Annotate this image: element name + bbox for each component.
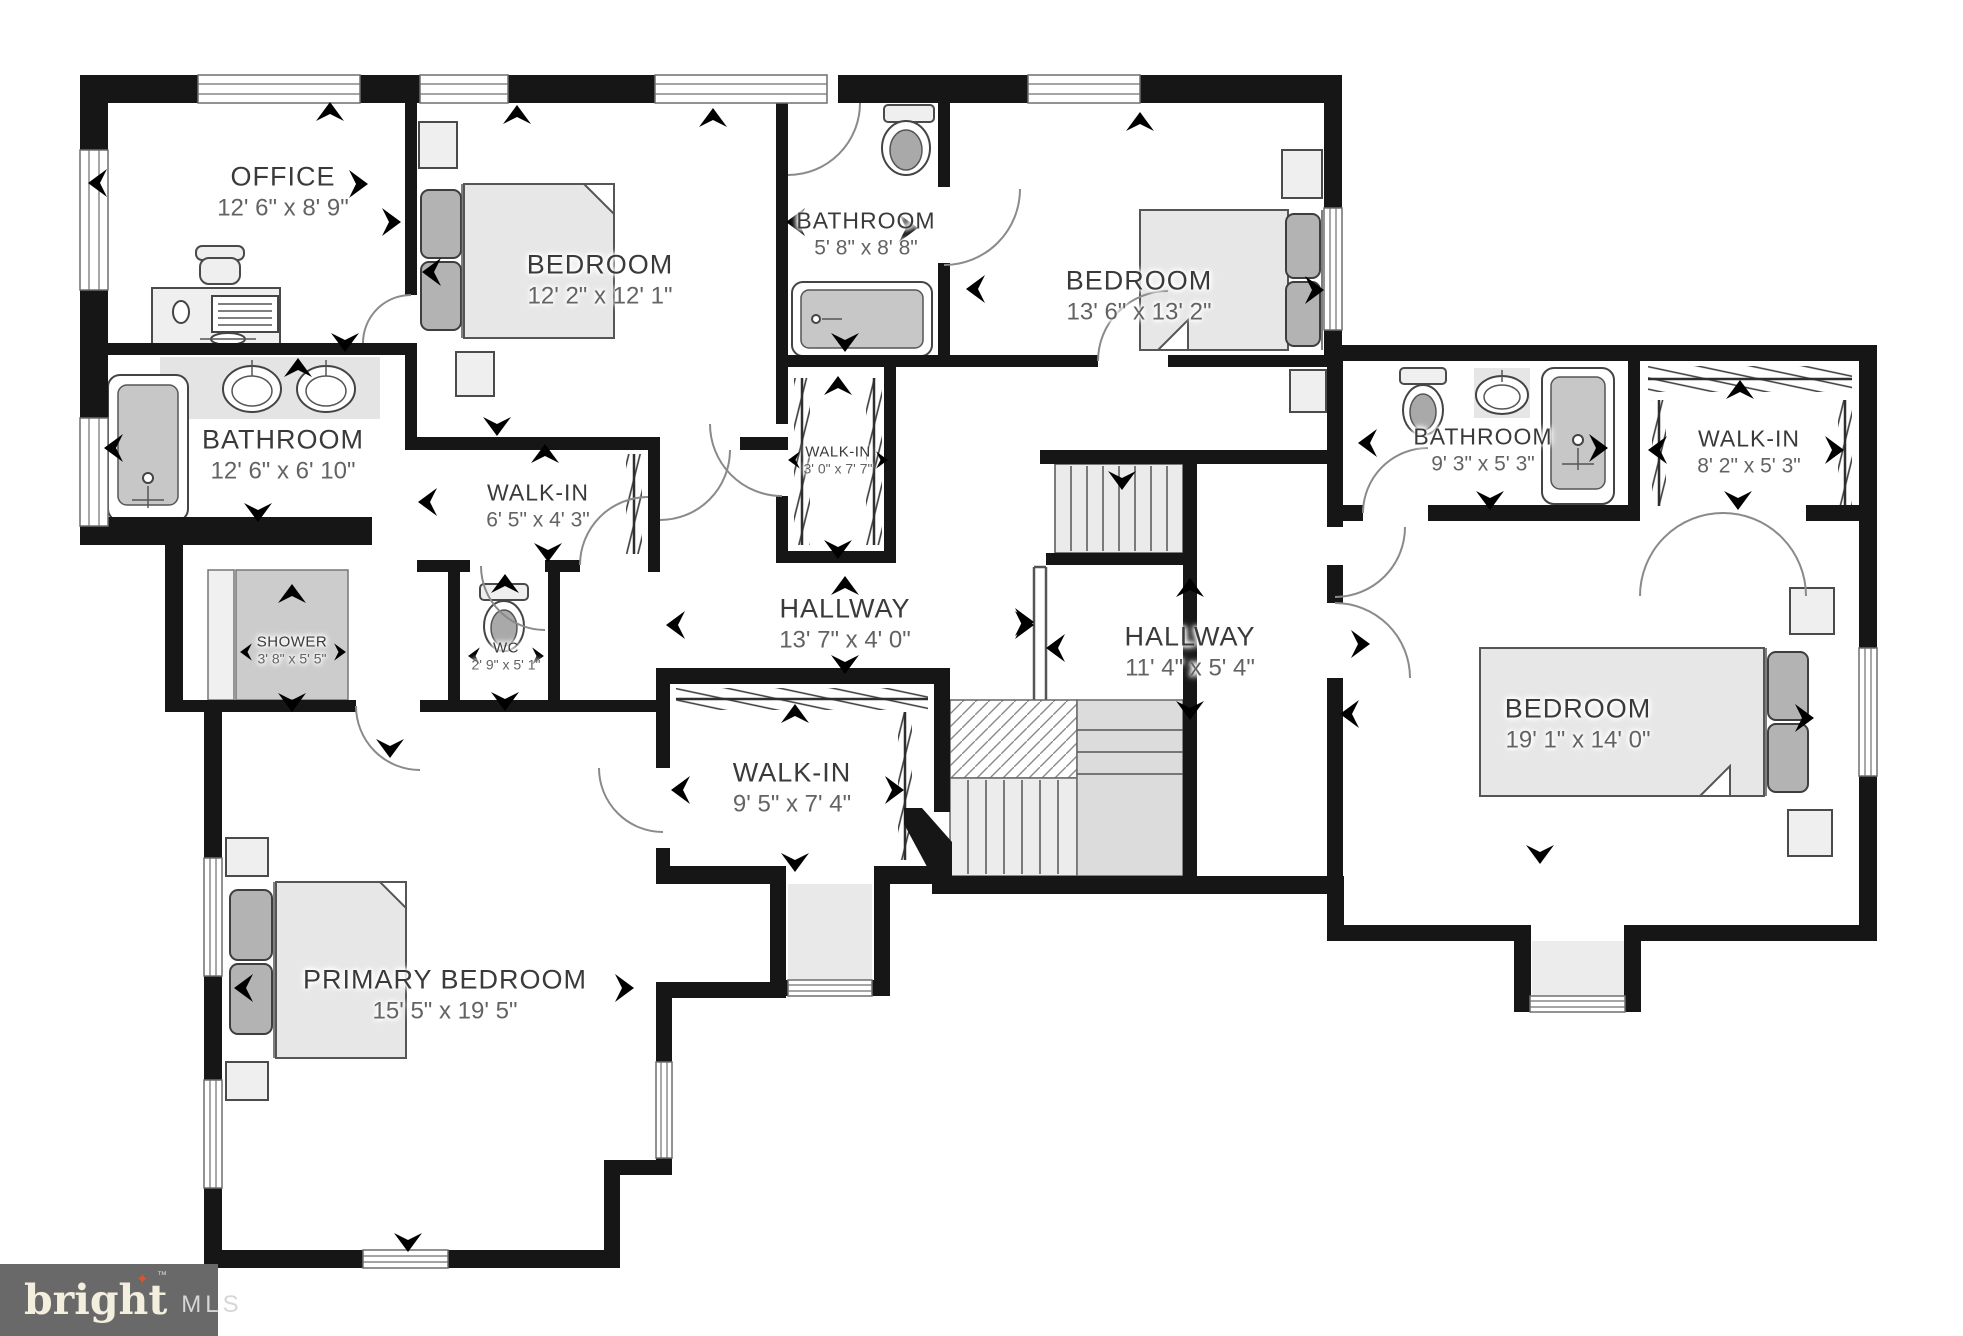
logo-spark-icon: ✦ (136, 1270, 149, 1288)
room-label-walkin-82: WALK-IN 8' 2" x 5' 3" (1697, 426, 1800, 479)
room-name: SHOWER (257, 634, 328, 651)
dresser-icon (1290, 370, 1326, 412)
room-label-shower: SHOWER 3' 8" x 5' 5" (257, 634, 328, 667)
room-name: BEDROOM (527, 250, 674, 281)
window-icon (788, 980, 872, 996)
bay-floor (1532, 941, 1624, 996)
toilet-icon (882, 105, 934, 175)
floor-plan: OFFICE 12' 6" x 8' 9" BEDROOM 12' 2" x 1… (0, 0, 1963, 1336)
room-dims: 9' 5" x 7' 4" (733, 791, 852, 819)
room-dims: 5' 8" x 8' 8" (796, 237, 935, 261)
room-name: WALK-IN (733, 758, 852, 789)
room-name: BEDROOM (1505, 694, 1652, 725)
room-dims: 2' 9" x 5' 1" (472, 657, 541, 673)
room-name: BEDROOM (1066, 266, 1213, 297)
room-name: WALK-IN (486, 480, 589, 507)
window-icon (80, 418, 108, 526)
sink-icon (1474, 368, 1530, 418)
room-dims: 12' 6" x 8' 9" (217, 195, 349, 223)
bathtub-icon (108, 375, 188, 521)
double-vanity-icon (160, 357, 380, 419)
room-name: PRIMARY BEDROOM (303, 965, 587, 996)
nightstand-icon (226, 838, 268, 876)
room-label-office: OFFICE 12' 6" x 8' 9" (217, 162, 349, 223)
room-dims: 9' 3" x 5' 3" (1413, 453, 1552, 477)
logo-trademark: ™ (157, 1270, 167, 1281)
room-label-primary-bedroom: PRIMARY BEDROOM 15' 5" x 19' 5" (303, 965, 587, 1026)
window-icon (363, 1250, 448, 1268)
staircase-lower (950, 700, 1183, 876)
room-dims: 8' 2" x 5' 3" (1697, 455, 1800, 479)
nightstand-icon (1790, 588, 1834, 634)
room-label-wc: WC 2' 9" x 5' 1" (472, 640, 541, 673)
room-dims: 11' 4" x 5' 4" (1124, 655, 1255, 683)
room-name: WALK-IN (804, 444, 873, 461)
room-dims: 19' 1" x 14' 0" (1505, 727, 1652, 755)
window-icon (80, 150, 108, 290)
room-name: BATHROOM (1413, 424, 1552, 451)
logo-mls-text: MLS (181, 1291, 242, 1319)
window-icon (204, 858, 222, 976)
nightstand-icon (419, 122, 457, 168)
room-name: WALK-IN (1697, 426, 1800, 453)
room-label-bedroom-front: BEDROOM 12' 2" x 12' 1" (527, 250, 674, 311)
window-icon (656, 1062, 672, 1158)
room-label-bathroom-left: BATHROOM 12' 6" x 6' 10" (202, 425, 364, 486)
window-icon (655, 75, 827, 103)
room-dims: 6' 5" x 4' 3" (486, 509, 589, 533)
bright-mls-logo: bright ✦ ™ MLS (0, 1264, 218, 1336)
room-label-bedroom-large: BEDROOM 19' 1" x 14' 0" (1505, 694, 1652, 755)
bathtub-icon (1542, 368, 1614, 504)
room-dims: 3' 8" x 5' 5" (257, 651, 328, 667)
room-label-bathroom-right: BATHROOM 9' 3" x 5' 3" (1413, 424, 1552, 477)
room-dims: 12' 6" x 6' 10" (202, 458, 364, 486)
room-label-walkin-65: WALK-IN 6' 5" x 4' 3" (486, 480, 589, 533)
window-icon (1028, 75, 1140, 103)
window-icon (198, 75, 360, 103)
window-icon (204, 1080, 222, 1188)
nightstand-icon (226, 1062, 268, 1100)
office-chair-icon (196, 246, 244, 284)
room-dims: 13' 6" x 13' 2" (1066, 299, 1213, 327)
window-icon (1859, 648, 1877, 776)
room-name: BATHROOM (796, 208, 935, 235)
window-icon (420, 75, 508, 103)
room-name: HALLWAY (1124, 622, 1255, 653)
bathtub-icon (792, 282, 932, 356)
room-dims: 13' 7" x 4' 0" (779, 627, 911, 655)
vestibule-floor (788, 884, 872, 980)
room-dims: 3' 0" x 7' 7" (804, 461, 873, 477)
nightstand-icon (456, 352, 494, 396)
room-label-walkin-95: WALK-IN 9' 5" x 7' 4" (733, 758, 852, 819)
room-label-bathroom-top: BATHROOM 5' 8" x 8' 8" (796, 208, 935, 261)
room-name: OFFICE (217, 162, 349, 193)
room-name: BATHROOM (202, 425, 364, 456)
window-icon (1530, 996, 1625, 1012)
room-label-hallway-right: HALLWAY 11' 4" x 5' 4" (1124, 622, 1255, 683)
room-name: HALLWAY (779, 594, 911, 625)
room-label-hallway-main: HALLWAY 13' 7" x 4' 0" (779, 594, 911, 655)
room-dims: 15' 5" x 19' 5" (303, 998, 587, 1026)
window-icon (1324, 208, 1342, 330)
room-name: WC (472, 640, 541, 657)
room-label-walkin-30: WALK-IN 3' 0" x 7' 7" (804, 444, 873, 477)
room-label-bedroom-top-right: BEDROOM 13' 6" x 13' 2" (1066, 266, 1213, 327)
room-dims: 12' 2" x 12' 1" (527, 283, 674, 311)
nightstand-icon (1282, 150, 1322, 198)
nightstand-icon (1788, 810, 1832, 856)
desk-icon (152, 288, 280, 348)
